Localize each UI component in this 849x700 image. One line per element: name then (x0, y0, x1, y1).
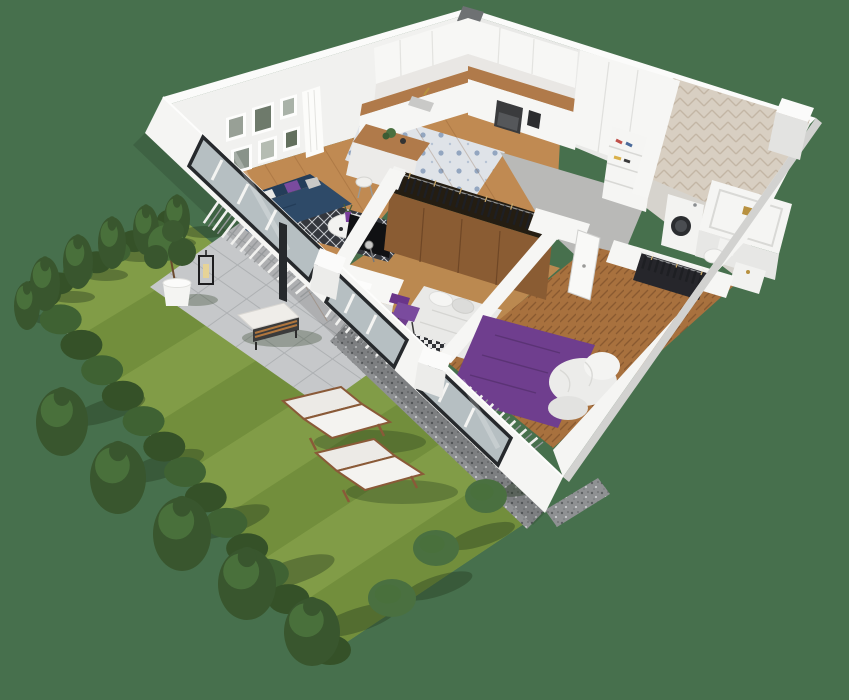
conifer-tip (40, 256, 50, 271)
bedding-white-fold (548, 396, 588, 420)
hedge-blob (60, 330, 102, 360)
books (624, 160, 630, 162)
conifer-tip (23, 281, 31, 294)
island-plant-leaf (383, 133, 390, 140)
door-knob (582, 264, 586, 268)
conifer-tip (108, 216, 117, 231)
hedge-blob (123, 406, 165, 436)
door-frame-post (279, 222, 287, 302)
conifer-tip (173, 496, 192, 517)
hedge-blob (205, 508, 247, 538)
stool-seat (356, 177, 372, 187)
books (614, 157, 621, 159)
bush-highlight (375, 585, 401, 604)
conifer-tip (173, 194, 181, 207)
island-bowl (400, 138, 406, 144)
picture-art (255, 105, 271, 132)
hedge-blob (81, 355, 123, 385)
picture-art (286, 130, 297, 148)
conifer-tip (238, 547, 257, 567)
planter-rim (163, 279, 191, 288)
tree-shadow (183, 226, 227, 238)
vanity-gold-tap (746, 270, 750, 274)
hedge-blob (164, 457, 206, 487)
washer-knob (693, 203, 697, 207)
table-cup (339, 227, 343, 231)
picture-art (283, 98, 294, 116)
washer-door-glass (675, 220, 687, 232)
conifer-tip (109, 441, 127, 461)
conifer-tip (54, 387, 71, 406)
floor-plan-render (0, 0, 849, 700)
hedge-blob (143, 432, 185, 462)
foliage (168, 238, 196, 266)
floor-plan-stage (0, 0, 849, 700)
bush-highlight (419, 535, 444, 553)
hedge-blob (102, 381, 144, 411)
conifer-tip (303, 597, 321, 616)
lantern-candle (203, 264, 209, 278)
bush-highlight (470, 484, 493, 501)
conifer-tip (73, 234, 83, 249)
desk-lamp-head (365, 241, 373, 249)
foliage (144, 245, 168, 269)
conifer-tip (142, 204, 150, 218)
foliage (162, 220, 184, 242)
